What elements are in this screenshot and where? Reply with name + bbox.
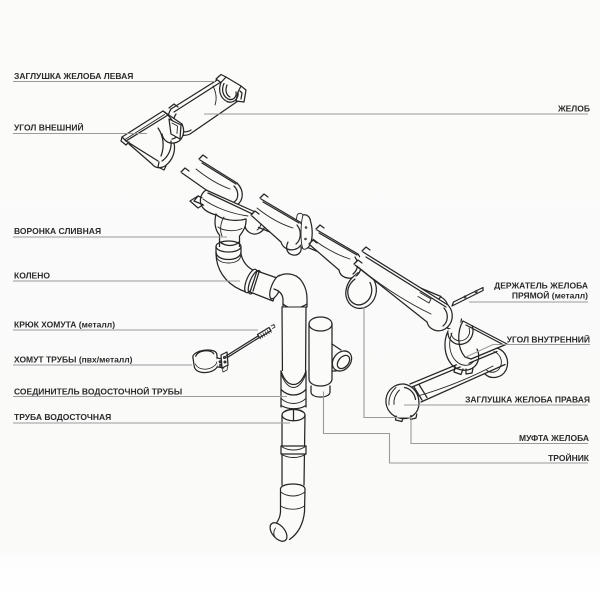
svg-text:УГОЛ ВНУТРЕННИЙ: УГОЛ ВНУТРЕННИЙ <box>507 334 590 345</box>
svg-text:ВОРОНКА СЛИВНАЯ: ВОРОНКА СЛИВНАЯ <box>14 226 101 236</box>
svg-text:СОЕДИНИТЕЛЬ ВОДОСТОЧНОЙ ТРУБЫ: СОЕДИНИТЕЛЬ ВОДОСТОЧНОЙ ТРУБЫ <box>14 386 182 397</box>
svg-text:ТРОЙНИК: ТРОЙНИК <box>548 452 590 463</box>
svg-text:ЗАГЛУШКА ЖЕЛОБА ЛЕВАЯ: ЗАГЛУШКА ЖЕЛОБА ЛЕВАЯ <box>14 71 133 81</box>
svg-text:КОЛЕНО: КОЛЕНО <box>14 271 50 281</box>
svg-text:ЖЕЛОБ: ЖЕЛОБ <box>557 104 590 114</box>
svg-text:КРЮК ХОМУТА (металл): КРЮК ХОМУТА (металл) <box>14 320 115 330</box>
svg-text:ХОМУТ ТРУБЫ (пвх/металл): ХОМУТ ТРУБЫ (пвх/металл) <box>14 355 133 365</box>
svg-text:МУФТА ЖЕЛОБА: МУФТА ЖЕЛОБА <box>519 433 589 443</box>
svg-text:ТРУБА ВОДОСТОЧНАЯ: ТРУБА ВОДОСТОЧНАЯ <box>14 412 111 422</box>
svg-text:ДЕРЖАТЕЛЬ ЖЕЛОБА: ДЕРЖАТЕЛЬ ЖЕЛОБА <box>494 281 588 291</box>
svg-text:УГОЛ ВНЕШНИЙ: УГОЛ ВНЕШНИЙ <box>14 122 84 133</box>
svg-text:ЗАГЛУШКА ЖЕЛОБА ПРАВАЯ: ЗАГЛУШКА ЖЕЛОБА ПРАВАЯ <box>465 395 590 405</box>
svg-text:ПРЯМОЙ (металл): ПРЯМОЙ (металл) <box>512 290 588 301</box>
